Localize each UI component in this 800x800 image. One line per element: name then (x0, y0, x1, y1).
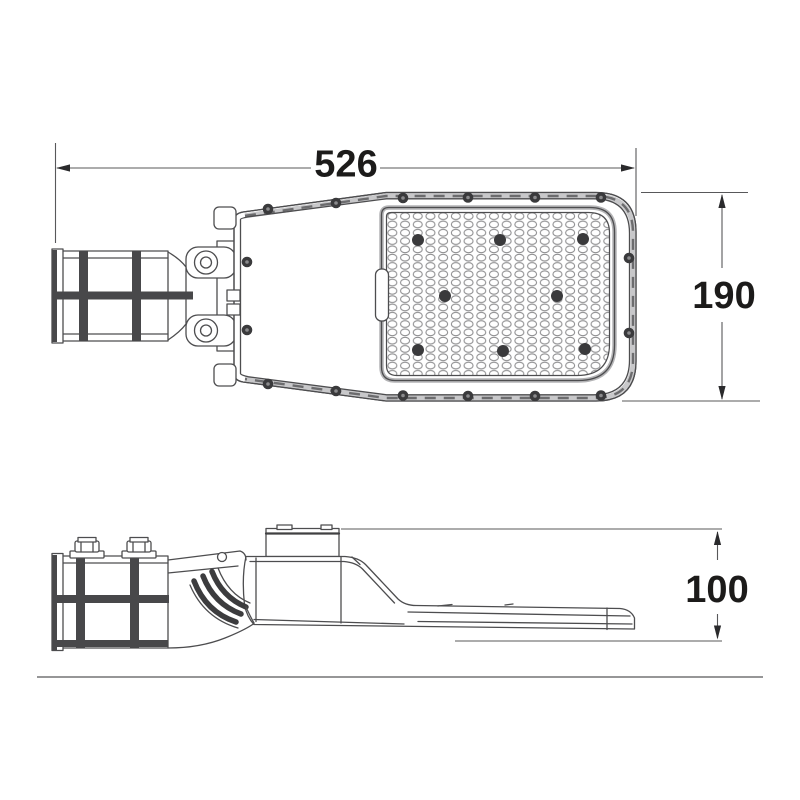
hinge-block (227, 304, 240, 315)
arrowhead-right (621, 164, 635, 171)
hinge-tab (214, 364, 236, 386)
arrowhead-up (718, 194, 725, 208)
top-view (52, 192, 636, 401)
screw (463, 391, 474, 402)
width-dimension-label: 190 (692, 275, 755, 317)
screw (398, 193, 409, 204)
hinge-block (227, 290, 240, 301)
clamp-bolt (70, 538, 104, 559)
arrowhead-down (714, 626, 721, 640)
bracket-bolt (195, 251, 218, 274)
screw (242, 325, 253, 336)
clamp-strap (55, 595, 169, 603)
height-dimension-label: 100 (685, 569, 748, 611)
screw (596, 192, 607, 203)
screw (242, 257, 253, 268)
arrowhead-down (718, 386, 725, 400)
clamp-bolt (122, 538, 156, 559)
screw (624, 328, 635, 339)
housing-side-profile (243, 525, 634, 630)
screw (263, 204, 274, 215)
panel-clip (376, 269, 389, 321)
screw (398, 390, 409, 401)
pole-clamp-tube-side (52, 538, 169, 651)
screw (530, 192, 541, 203)
bracket-bolt (195, 319, 218, 342)
hinge-bolt (218, 553, 227, 562)
screw (463, 192, 474, 203)
clamp-strap (56, 292, 193, 300)
screw (331, 386, 342, 397)
screw (331, 198, 342, 209)
dimension-width: 190 (622, 193, 760, 402)
screw (263, 379, 274, 390)
arrowhead-left (56, 164, 70, 171)
length-dimension-label: 526 (314, 144, 377, 186)
street-light-dimension-drawing: 526 (0, 0, 800, 800)
screw (530, 391, 541, 402)
screw (596, 390, 607, 401)
side-view (52, 525, 635, 651)
screw (624, 253, 635, 264)
drawing-canvas: 526 (0, 0, 800, 800)
pole-clamp-tube (52, 249, 193, 343)
hinge-tab (214, 207, 236, 229)
arrowhead-up (714, 531, 721, 545)
tilt-hinge (168, 551, 254, 648)
led-panel (376, 208, 615, 381)
